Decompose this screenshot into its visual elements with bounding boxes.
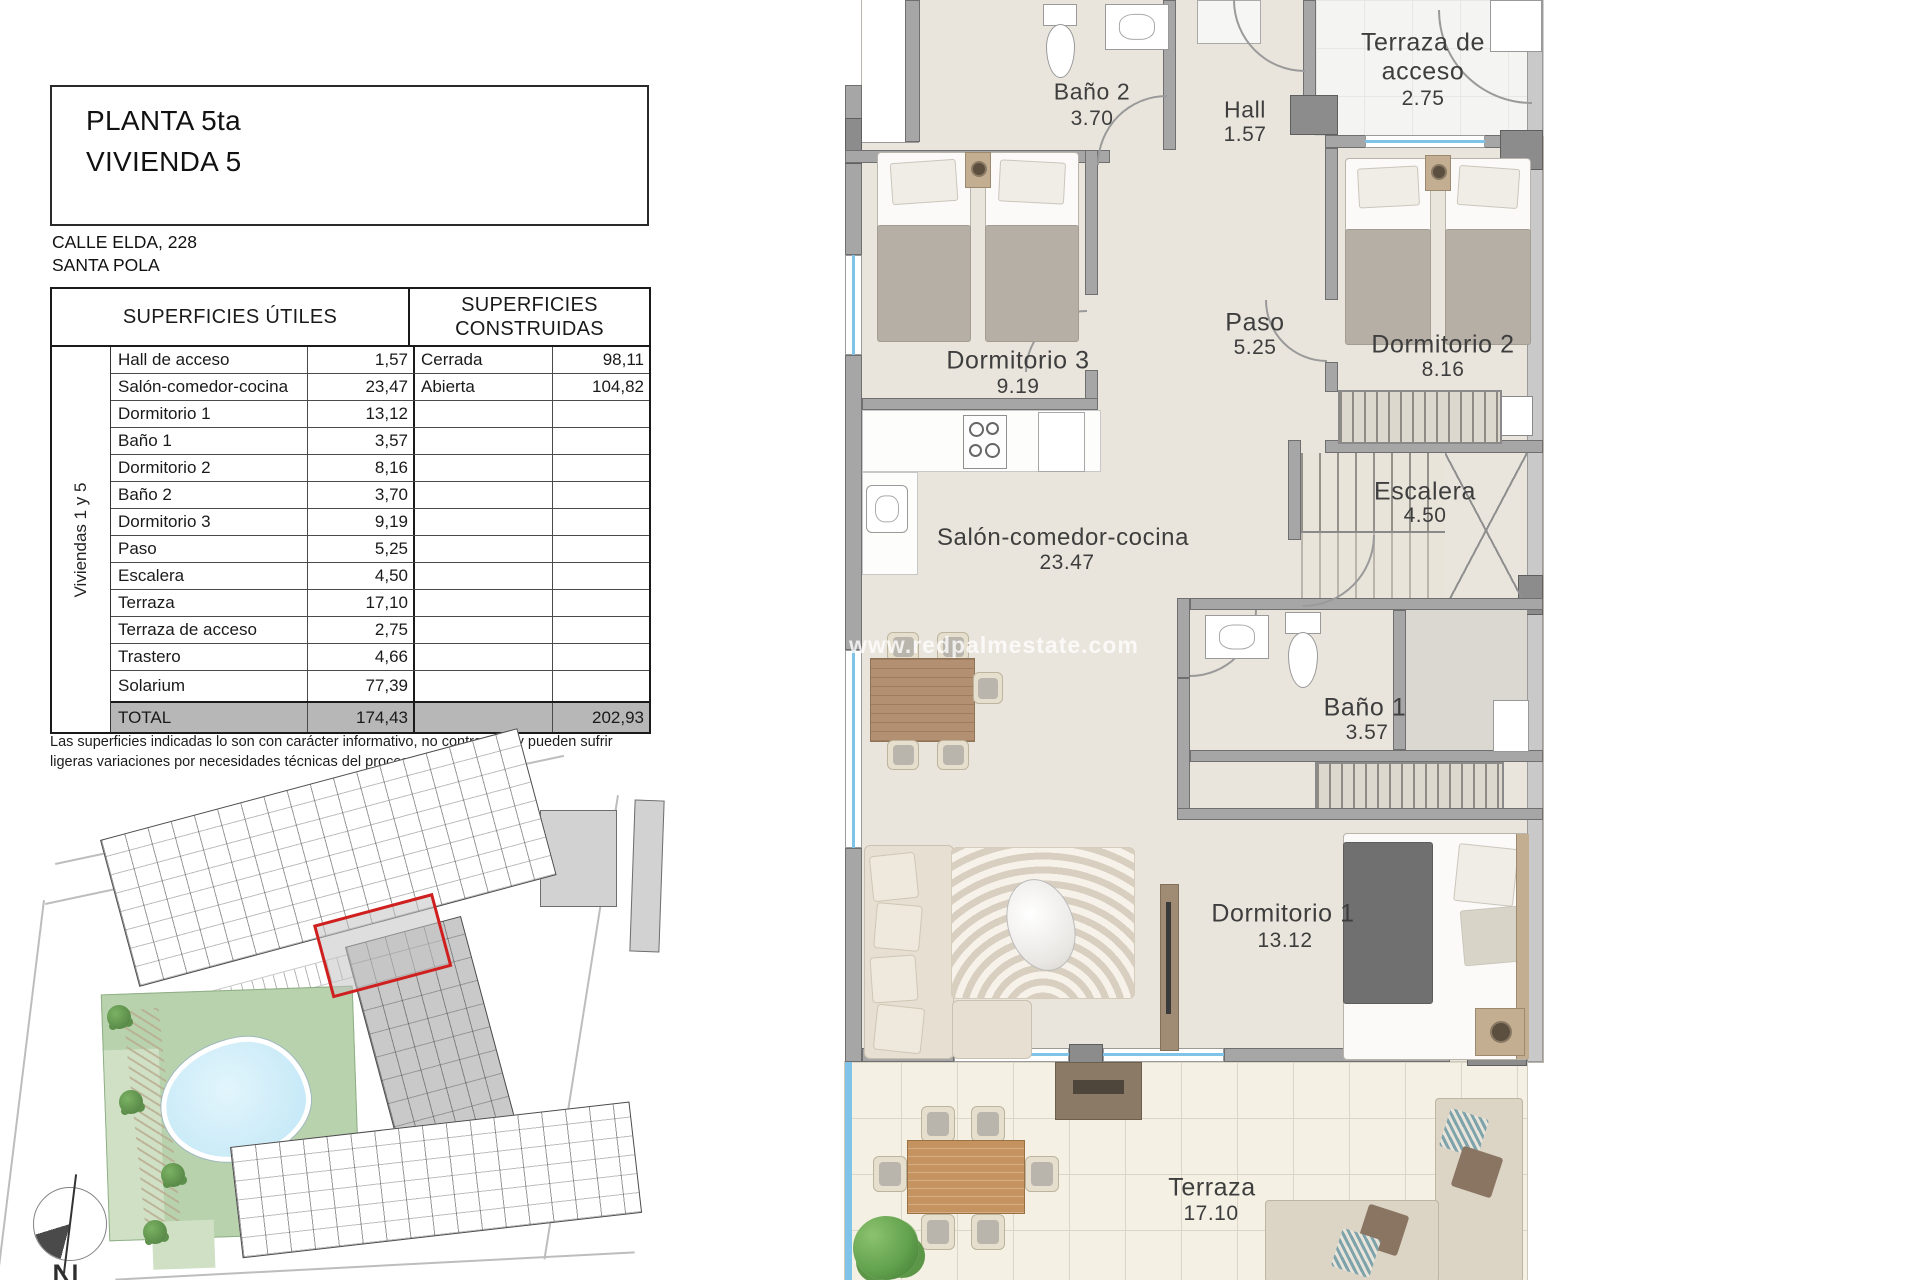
row-value: 3,57	[307, 428, 413, 454]
wall	[1177, 678, 1190, 810]
room-area-terraza: 17.10	[1183, 1202, 1238, 1226]
wall	[845, 848, 862, 1062]
row-name: Escalera	[111, 563, 307, 589]
row-value: 4,50	[307, 563, 413, 589]
bed-dormitorio2-right	[1445, 158, 1531, 345]
address-street: CALLE ELDA, 228	[52, 231, 197, 254]
chair	[887, 740, 919, 770]
room-label-dormitorio2: Dormitorio 2	[1371, 331, 1514, 360]
wall	[845, 355, 862, 650]
terrace-glass-rail	[845, 1062, 852, 1280]
window-glass	[1103, 1053, 1224, 1056]
row-name: Dormitorio 3	[111, 509, 307, 535]
row-value: 5,25	[307, 536, 413, 562]
row-cname	[413, 644, 552, 670]
table-row: Paso5,25	[111, 535, 649, 562]
row-cname	[413, 482, 552, 508]
row-cvalue	[552, 671, 649, 701]
row-value: 2,75	[307, 617, 413, 643]
wall	[1325, 148, 1338, 300]
address-city: SANTA POLA	[52, 254, 197, 277]
window-glass	[852, 255, 855, 355]
table-row: Hall de acceso1,57Cerrada98,11	[111, 347, 649, 373]
sofa-chaise	[952, 1000, 1032, 1059]
terrace-sofa	[1265, 1200, 1439, 1280]
table-row: Dormitorio 28,16	[111, 454, 649, 481]
table-row: Dormitorio 39,19	[111, 508, 649, 535]
address: CALLE ELDA, 228 SANTA POLA	[52, 231, 197, 277]
wall	[845, 85, 862, 255]
total-construidas: 202,93	[552, 703, 649, 732]
compass-icon	[33, 1187, 107, 1261]
terrace-chair	[873, 1156, 907, 1192]
row-name: Dormitorio 2	[111, 455, 307, 481]
row-name: Baño 2	[111, 482, 307, 508]
table-row: Baño 13,57	[111, 427, 649, 454]
row-name: Hall de acceso	[111, 347, 307, 373]
row-cname	[413, 617, 552, 643]
title-block: PLANTA 5ta VIVIENDA 5	[50, 85, 649, 226]
room-label-bano1: Baño 1	[1324, 694, 1407, 723]
surface-table-rows: Hall de acceso1,57Cerrada98,11 Salón-com…	[111, 347, 649, 732]
wall	[1177, 598, 1190, 678]
plan-title-line1: PLANTA 5ta	[86, 101, 242, 142]
table-row: Salón-comedor-cocina23,47Abierta104,82	[111, 373, 649, 400]
toilet-icon	[1285, 612, 1321, 634]
room-label-bano2: Baño 2	[1054, 79, 1131, 106]
wall	[1177, 808, 1543, 820]
row-name: Baño 1	[111, 428, 307, 454]
wall	[862, 398, 1098, 410]
room-area-dormitorio3: 9.19	[997, 375, 1040, 399]
row-name: Salón-comedor-cocina	[111, 374, 307, 400]
row-cname	[413, 590, 552, 616]
table-row: Escalera4,50	[111, 562, 649, 589]
terrace-chair	[1025, 1156, 1059, 1192]
row-value: 3,70	[307, 482, 413, 508]
row-cvalue	[552, 536, 649, 562]
wall	[1325, 362, 1338, 392]
room-label-terraza: Terraza	[1168, 1174, 1256, 1203]
row-cvalue: 104,82	[552, 374, 649, 400]
room-area-bano2: 3.70	[1071, 107, 1114, 131]
row-value: 13,12	[307, 401, 413, 427]
wall	[1085, 150, 1098, 295]
sofa	[864, 845, 954, 1059]
plan-title-line2: VIVIENDA 5	[86, 142, 242, 183]
row-value: 17,10	[307, 590, 413, 616]
row-cvalue	[552, 401, 649, 427]
row-cvalue	[552, 617, 649, 643]
toilet-icon	[1043, 4, 1077, 26]
window-glass	[852, 650, 855, 848]
nightstand	[965, 152, 991, 188]
header-superficies-utiles: SUPERFICIES ÚTILES	[52, 289, 410, 345]
row-cvalue: 98,11	[552, 347, 649, 373]
kitchen-sink-icon	[866, 485, 908, 533]
row-cname	[413, 401, 552, 427]
tree-icon	[143, 1220, 167, 1244]
terrace-console	[1055, 1062, 1142, 1120]
watermark: www.redpalmestate.com	[849, 632, 1139, 659]
niche	[1493, 700, 1529, 752]
wardrobe-hatch	[1338, 390, 1502, 444]
wall	[1190, 598, 1543, 610]
row-cname: Abierta	[413, 374, 552, 400]
room-area-dormitorio1: 13.12	[1257, 929, 1312, 953]
site-plan: N	[15, 795, 665, 1280]
row-name: Solarium	[111, 671, 307, 701]
room-area-escalera: 4.50	[1404, 504, 1447, 528]
row-cvalue	[552, 455, 649, 481]
fridge-icon	[1038, 412, 1085, 472]
surface-table-header: SUPERFICIES ÚTILES SUPERFICIES CONSTRUID…	[52, 289, 649, 347]
row-group-label-cell: Viviendas 1 y 5	[52, 347, 111, 732]
room-area-hall: 1.57	[1224, 123, 1267, 147]
row-value: 23,47	[307, 374, 413, 400]
terrace-chair	[921, 1106, 955, 1142]
table-total-row: TOTAL174,43202,93	[111, 701, 649, 732]
chair	[973, 672, 1003, 704]
row-value: 8,16	[307, 455, 413, 481]
closet-niche	[1501, 396, 1533, 436]
row-cname	[413, 455, 552, 481]
row-cvalue	[552, 563, 649, 589]
stove-icon	[963, 415, 1007, 469]
row-cname	[413, 509, 552, 535]
bed-dormitorio3-right	[985, 152, 1079, 342]
terrace-chair	[971, 1214, 1005, 1250]
terrace-sofa	[1435, 1098, 1523, 1280]
row-cname: Cerrada	[413, 347, 552, 373]
table-row: Solarium77,39	[111, 670, 649, 701]
room-area-salon: 23.47	[1039, 551, 1094, 575]
stairs-upper-hatch	[1315, 762, 1504, 812]
total-utiles: 174,43	[307, 703, 413, 732]
floor-plan-sheet: PLANTA 5ta VIVIENDA 5 CALLE ELDA, 228 SA…	[0, 0, 1920, 1280]
north-label: N	[51, 1257, 80, 1280]
surface-table: SUPERFICIES ÚTILES SUPERFICIES CONSTRUID…	[50, 287, 651, 734]
row-cvalue	[552, 428, 649, 454]
wall	[1288, 440, 1301, 540]
tree-icon	[107, 1005, 131, 1029]
disclaimer-text: Las superficies indicadas lo son con car…	[50, 733, 642, 772]
sink-icon	[1105, 4, 1169, 50]
row-value: 4,66	[307, 644, 413, 670]
room-area-bano1: 3.57	[1346, 721, 1389, 745]
room-label-dormitorio1: Dormitorio 1	[1211, 900, 1354, 929]
row-cname	[413, 536, 552, 562]
row-name: Trastero	[111, 644, 307, 670]
row-cvalue	[552, 644, 649, 670]
plant-icon	[853, 1216, 919, 1280]
stairs-direction-lines	[1445, 453, 1527, 608]
tree-icon	[161, 1163, 185, 1187]
nightstand	[1475, 1008, 1525, 1056]
room-label-escalera: Escalera	[1374, 478, 1476, 507]
row-name: Terraza de acceso	[111, 617, 307, 643]
sink-icon	[1205, 615, 1269, 659]
row-cname	[413, 671, 552, 701]
row-cvalue	[552, 590, 649, 616]
row-value: 77,39	[307, 671, 413, 701]
terrace-table	[907, 1140, 1025, 1214]
row-value: 1,57	[307, 347, 413, 373]
wall	[905, 0, 920, 142]
row-name: Dormitorio 1	[111, 401, 307, 427]
room-area-dormitorio2: 8.16	[1422, 358, 1465, 382]
table-row: Baño 23,70	[111, 481, 649, 508]
room-area-paso: 5.25	[1234, 336, 1277, 360]
row-cname	[413, 563, 552, 589]
tv-icon	[1166, 902, 1171, 1014]
row-value: 9,19	[307, 509, 413, 535]
room-label-paso: Paso	[1225, 309, 1284, 338]
dining-table	[870, 658, 975, 742]
room-label-hall: Hall	[1224, 97, 1266, 124]
bed-dormitorio3-left	[877, 152, 971, 342]
total-cname	[413, 703, 552, 732]
table-row: Dormitorio 113,12	[111, 400, 649, 427]
header-superficies-construidas: SUPERFICIES CONSTRUIDAS	[410, 289, 649, 345]
bed-dormitorio2-left	[1345, 158, 1431, 345]
room-area-terraza-acceso: 2.75	[1402, 87, 1445, 111]
room-label-salon: Salón-comedor-cocina	[937, 524, 1189, 552]
wall	[1393, 610, 1406, 750]
apartment-floor-plan: www.redpalmestate.com Baño 2 3.70 Hall 1…	[845, 0, 1565, 1280]
chair	[937, 740, 969, 770]
row-cvalue	[552, 509, 649, 535]
row-group-label: Viviendas 1 y 5	[71, 482, 91, 597]
neighbor-building	[629, 800, 664, 953]
terrace-chair	[921, 1214, 955, 1250]
room-label-terraza-acceso: Terraza de acceso	[1343, 28, 1503, 86]
terrace-chair	[971, 1106, 1005, 1142]
row-cname	[413, 428, 552, 454]
table-row: Terraza17,10	[111, 589, 649, 616]
window-glass	[1365, 140, 1485, 143]
nightstand	[1425, 155, 1451, 191]
row-name: Terraza	[111, 590, 307, 616]
row-cvalue	[552, 482, 649, 508]
table-row: Trastero4,66	[111, 643, 649, 670]
table-row: Terraza de acceso2,75	[111, 616, 649, 643]
row-name: Paso	[111, 536, 307, 562]
room-label-dormitorio3: Dormitorio 3	[946, 347, 1089, 376]
wall	[1190, 750, 1543, 762]
wall-pillar	[1290, 95, 1338, 135]
tree-icon	[119, 1090, 143, 1114]
total-label: TOTAL	[111, 703, 307, 732]
